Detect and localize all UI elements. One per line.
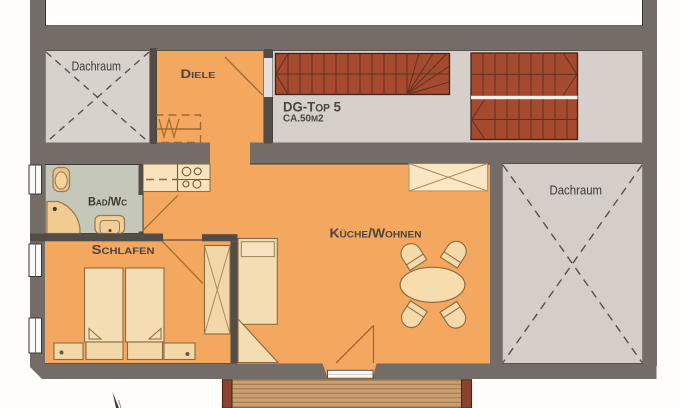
svg-text:Dachraum: Dachraum xyxy=(72,59,122,74)
svg-text:DIELE: DIELE xyxy=(181,69,216,81)
svg-text:Dachraum: Dachraum xyxy=(550,183,603,198)
svg-text:BAD/WC: BAD/WC xyxy=(88,196,127,209)
svg-text:CA.50M2: CA.50M2 xyxy=(283,114,324,125)
